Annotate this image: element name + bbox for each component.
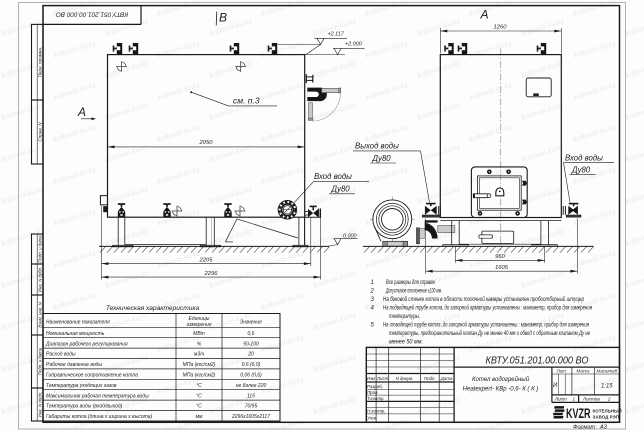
svg-text:Температура уходящих газов: Температура уходящих газов bbox=[46, 383, 117, 389]
svg-text:50-100: 50-100 bbox=[243, 341, 259, 347]
svg-text:2: 2 bbox=[607, 397, 611, 402]
svg-text:B: B bbox=[219, 11, 227, 25]
svg-text:ЗАВОД РЭП: ЗАВОД РЭП bbox=[593, 415, 620, 420]
svg-text:2296х1605х2117: 2296х1605х2117 bbox=[231, 414, 270, 420]
svg-text:измерения: измерения bbox=[186, 322, 211, 328]
svg-text:Значение: Значение bbox=[240, 320, 262, 326]
svg-text:Инв. N подл.: Инв. N подл. bbox=[38, 392, 43, 418]
svg-text:°С: °С bbox=[196, 383, 202, 389]
svg-text:Ду80: Ду80 bbox=[571, 165, 591, 174]
svg-text:На отводящей трубе котла ,до з: На отводящей трубе котла ,до запорной ар… bbox=[383, 321, 590, 328]
svg-text:менее 50 мм.: менее 50 мм. bbox=[389, 339, 423, 345]
svg-text:+2.117: +2.117 bbox=[328, 32, 345, 38]
svg-text:2296: 2296 bbox=[204, 271, 219, 277]
svg-text:A: A bbox=[480, 7, 489, 21]
svg-text:Температура воды (вход/выход): Температура воды (вход/выход) bbox=[46, 404, 123, 410]
svg-text:Инв. N дубл.: Инв. N дубл. bbox=[38, 267, 43, 292]
svg-text:Дата: Дата bbox=[440, 376, 453, 381]
svg-text:Подп.: Подп. bbox=[424, 376, 436, 381]
svg-text:Лит.: Лит. bbox=[556, 368, 567, 373]
svg-text:2205: 2205 bbox=[199, 257, 214, 263]
svg-text:температуры.: температуры. bbox=[389, 314, 420, 320]
svg-text:см. п.3: см. п.3 bbox=[233, 96, 260, 106]
svg-text:Расход воды: Расход воды bbox=[46, 352, 76, 358]
svg-text:Единицы: Единицы bbox=[189, 316, 210, 322]
svg-text:20: 20 bbox=[247, 352, 254, 358]
svg-text:Выход воды: Выход воды bbox=[355, 142, 399, 151]
svg-text:°С: °С bbox=[196, 393, 202, 399]
svg-text:И: И bbox=[553, 383, 558, 389]
svg-text:Н.контр.: Н.контр. bbox=[367, 409, 386, 414]
svg-text:N докум.: N докум. bbox=[396, 376, 414, 381]
svg-text:Подп. и дата: Подп. и дата bbox=[38, 347, 43, 375]
svg-text:%: % bbox=[197, 341, 202, 347]
svg-text:Вход воды: Вход воды bbox=[314, 172, 352, 181]
svg-text:0,6 (6,0): 0,6 (6,0) bbox=[242, 362, 261, 368]
svg-text:Вход воды: Вход воды bbox=[565, 153, 603, 162]
svg-text:На боковой стенке котла в обла: На боковой стенке котла в области топочн… bbox=[383, 296, 584, 303]
svg-text:+2.000: +2.000 bbox=[345, 42, 362, 48]
svg-text:А3: А3 bbox=[599, 424, 608, 430]
svg-text:Номинальная мощность: Номинальная мощность bbox=[46, 331, 105, 337]
svg-text:KVZR: KVZR bbox=[566, 406, 591, 421]
svg-text:температуры, предохранительный: температуры, предохранительный клапан Ду… bbox=[389, 330, 590, 337]
svg-text:Перв. примен.: Перв. примен. bbox=[38, 47, 43, 78]
svg-text:115: 115 bbox=[247, 393, 255, 399]
svg-text:Формат: Формат bbox=[573, 424, 596, 430]
svg-text:Допустимое отклонение ±100 мм.: Допустимое отклонение ±100 мм. bbox=[385, 288, 442, 294]
svg-text:Гидравлическое сопротивление к: Гидравлическое сопротивление котла bbox=[46, 373, 138, 379]
svg-text:Справ. N: Справ. N bbox=[38, 122, 43, 142]
svg-text:Масса: Масса bbox=[577, 368, 591, 373]
svg-text:Пров.: Пров. bbox=[367, 390, 379, 395]
svg-text:2050: 2050 bbox=[199, 140, 214, 146]
svg-text:Наименование показателя: Наименование показателя bbox=[46, 320, 110, 326]
svg-text:Максимальная рабочая температу: Максимальная рабочая температура воды bbox=[46, 393, 149, 399]
svg-text:Изм: Изм bbox=[367, 376, 375, 381]
svg-text:Heatexpert- КВр -0,6- К ( К ): Heatexpert- КВр -0,6- К ( К ) bbox=[463, 386, 539, 392]
svg-text:не более 220: не более 220 bbox=[236, 383, 267, 389]
svg-text:1260: 1260 bbox=[494, 25, 508, 31]
svg-text:Все размеры для справок: Все размеры для справок bbox=[386, 280, 436, 286]
svg-text:Рабочее давление воды: Рабочее давление воды bbox=[46, 362, 102, 368]
svg-text:КВТУ.051.201.00.000 ВО: КВТУ.051.201.00.000 ВО bbox=[56, 10, 128, 17]
svg-text:Лист: Лист bbox=[554, 397, 567, 402]
svg-text:Взам. инв. N: Взам. инв. N bbox=[38, 301, 43, 327]
svg-text:960: 960 bbox=[495, 254, 505, 260]
svg-text:Разраб.: Разраб. bbox=[367, 384, 383, 389]
svg-text:Котел водогрейный: Котел водогрейный bbox=[472, 376, 530, 383]
svg-text:°С: °С bbox=[196, 404, 202, 410]
svg-text:Ду80: Ду80 bbox=[372, 154, 392, 163]
svg-text:1: 1 bbox=[371, 280, 374, 286]
svg-text:МПа (кгс/см2): МПа (кгс/см2) bbox=[183, 373, 216, 379]
svg-text:МПа (кгс/см2): МПа (кгс/см2) bbox=[183, 362, 216, 368]
svg-text:1: 1 bbox=[573, 397, 576, 402]
svg-text:1605: 1605 bbox=[495, 265, 509, 271]
svg-text:A: A bbox=[77, 105, 86, 119]
svg-text:КВТУ.051.201.00.000 ВО: КВТУ.051.201.00.000 ВО bbox=[486, 355, 589, 367]
svg-text:МВт: МВт bbox=[193, 331, 205, 337]
svg-text:0,06 (0,6): 0,06 (0,6) bbox=[240, 373, 262, 379]
svg-text:0,6: 0,6 bbox=[248, 331, 255, 337]
svg-text:м3/ч: м3/ч bbox=[194, 352, 205, 358]
svg-text:Т.контр.: Т.контр. bbox=[367, 396, 385, 401]
svg-text:Техническая характеристика: Техническая характеристика bbox=[106, 305, 200, 312]
svg-text:Листов: Листов bbox=[582, 397, 600, 402]
svg-text:На подводящей трубе котла, д: На подводящей трубе котла, до запорной а… bbox=[383, 304, 593, 311]
svg-text:Диапазон рабочего регулировани: Диапазон рабочего регулирования bbox=[45, 341, 128, 347]
svg-text:2: 2 bbox=[370, 288, 375, 294]
svg-text:Подп. и дата: Подп. и дата bbox=[38, 235, 43, 263]
svg-text:Лист: Лист bbox=[376, 376, 389, 381]
svg-text:Масштаб: Масштаб bbox=[597, 368, 618, 373]
svg-text:Габариты котла (длина х ширина: Габариты котла (длина х ширина х высота) bbox=[46, 414, 153, 420]
svg-text:Утв.: Утв. bbox=[367, 415, 377, 420]
svg-text:КОТЕЛЬНЫЙ: КОТЕЛЬНЫЙ bbox=[593, 406, 622, 413]
svg-text:Ду80: Ду80 bbox=[331, 185, 351, 194]
svg-text:70/95: 70/95 bbox=[245, 404, 258, 410]
svg-text:1:15: 1:15 bbox=[601, 383, 613, 389]
svg-text:мм: мм bbox=[196, 414, 203, 420]
